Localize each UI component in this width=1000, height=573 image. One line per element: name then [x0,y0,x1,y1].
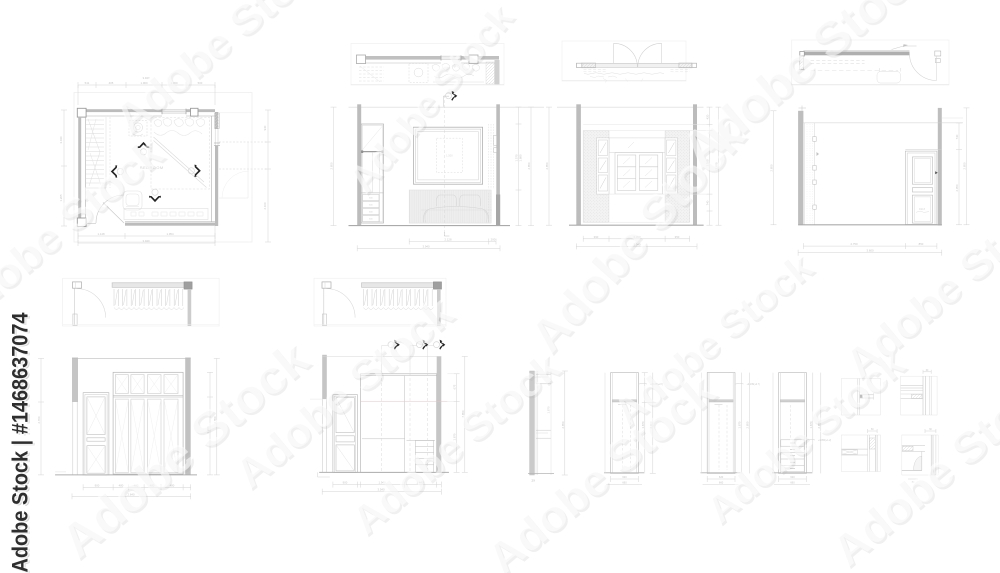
svg-text:2.850: 2.850 [330,162,334,169]
svg-text:2X: 2X [532,479,536,483]
svg-text:2.850: 2.850 [770,164,774,171]
svg-text:1.500: 1.500 [446,154,453,158]
svg-text:1.954: 1.954 [167,232,174,236]
svg-text:2.850: 2.850 [963,162,967,169]
svg-text:405: 405 [109,81,114,85]
svg-text:2.850: 2.850 [561,421,565,428]
svg-text:2.750: 2.750 [851,242,858,246]
svg-text:60: 60 [929,429,932,431]
svg-text:910.8: 910.8 [919,208,926,211]
svg-text:3.040: 3.040 [59,136,63,143]
svg-text:60: 60 [926,370,929,372]
svg-text:900: 900 [343,481,348,485]
svg-text:2.850: 2.850 [745,421,749,428]
svg-text:3.940: 3.940 [143,239,150,243]
svg-text:3.600: 3.600 [867,249,874,253]
svg-text:200: 200 [491,238,496,242]
svg-text:1.870: 1.870 [547,406,551,413]
svg-text:2.850: 2.850 [527,162,531,169]
svg-text:2.100: 2.100 [263,202,267,209]
svg-text:Adobe Stock: Adobe Stock [0,127,173,338]
svg-text:1.148: 1.148 [98,232,105,236]
svg-text:390: 390 [594,235,599,239]
svg-text:2.700: 2.700 [37,416,41,423]
svg-text:541: 541 [85,81,90,85]
svg-text:850: 850 [919,242,924,246]
svg-text:2.128: 2.128 [445,238,452,242]
svg-text:2.850: 2.850 [545,162,549,169]
svg-text:740: 740 [955,134,959,139]
svg-text:3.940: 3.940 [423,244,430,248]
svg-text:+2.135(+2.7): +2.135(+2.7) [747,384,760,386]
svg-text:940: 940 [263,125,267,130]
svg-text:60: 60 [871,429,874,431]
svg-text:675: 675 [453,384,457,389]
svg-text:1.880: 1.880 [519,154,523,161]
svg-text:2.050: 2.050 [955,184,959,191]
svg-text:Adobe Stock | #1468637074: Adobe Stock | #1468637074 [8,312,33,572]
svg-text:1.870: 1.870 [737,421,741,428]
svg-text:660: 660 [790,481,795,485]
